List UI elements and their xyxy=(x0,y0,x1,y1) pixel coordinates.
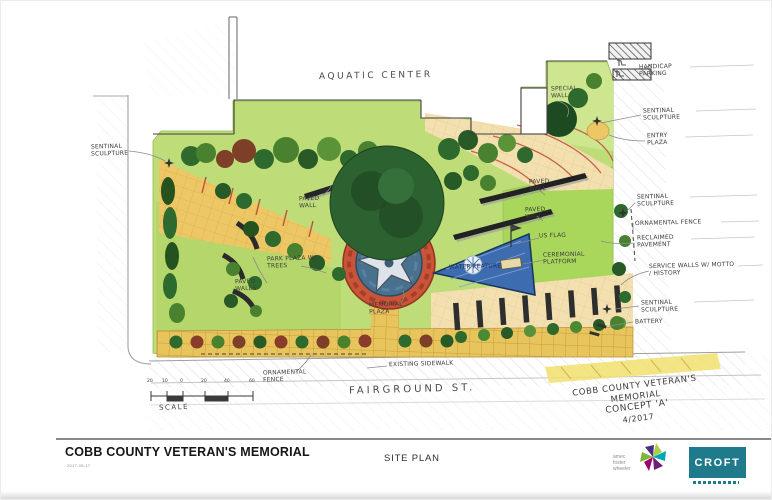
specimen-tree xyxy=(330,146,444,260)
amec-foster-wheeler-logo: amec foster wheeler xyxy=(611,439,673,483)
page-edge-shadow xyxy=(1,491,772,500)
project-title: COBB COUNTY VETERAN'S MEMORIAL xyxy=(65,445,310,459)
scale-tick: 0 xyxy=(180,379,183,384)
label-us-flag: US FLAG xyxy=(539,231,579,239)
label-ceremonial-platform: CEREMONIAL PLATFORM xyxy=(543,250,599,266)
sheet-name: SITE PLAN xyxy=(384,453,440,464)
scale-tick: 20 xyxy=(147,379,153,384)
scale-tick: 20 xyxy=(201,379,207,384)
label-sentinal-sculpture-w: SENTINAL SCULPTURE xyxy=(91,142,139,158)
label-paved-wall-nw: PAVED WALL xyxy=(299,195,333,210)
scale-tick: 40 xyxy=(224,379,230,384)
label-paved-wall-ne2: PAVED WALL xyxy=(525,206,559,221)
label-entry-plaza: ENTRY PLAZA xyxy=(647,132,683,147)
label-paved-walls-w: PAVED WALLS xyxy=(235,278,269,293)
croft-logo-text: CROFT xyxy=(695,457,741,469)
label-ornamental-fence-s: ORNAMENTAL FENCE xyxy=(263,368,309,384)
scale-tick: 10 xyxy=(162,379,168,384)
entry-plaza-paving xyxy=(587,122,609,140)
label-memorial-plaza: MEMORIAL PLAZA xyxy=(369,300,417,316)
label-paved-wall-ne1: PAVED WALL xyxy=(529,178,563,193)
croft-logo: CROFT xyxy=(689,447,746,478)
aquatic-center-label: AQUATIC CENTER xyxy=(319,70,433,82)
handicap-symbol-icon xyxy=(617,59,626,66)
graphic-scale: 20 10 0 20 40 60 SCALE xyxy=(147,379,267,410)
date-stamp: 2017-05-17 xyxy=(67,463,90,468)
label-sentinal-sculpture-se: SENTINAL SCULPTURE xyxy=(641,298,691,314)
label-reclaimed-pavement: RECLAIMED PAVEMENT xyxy=(637,233,689,249)
label-sentinal-sculpture-ne: SENTINAL SCULPTURE xyxy=(643,106,693,122)
label-handicap-parking: HANDICAP PARKING xyxy=(639,62,687,78)
label-park-plaza: PARK PLAZA W/ TREES xyxy=(267,254,319,270)
label-special-wall: SPECIAL WALL xyxy=(551,84,591,99)
amec-logo-text: amec foster wheeler xyxy=(613,455,631,472)
label-service-walls: SERVICE WALLS W/ MOTTO / HISTORY xyxy=(649,261,735,278)
label-sentinal-sculpture-e: SENTINAL SCULPTURE xyxy=(637,192,687,208)
label-battery: BATTERY xyxy=(635,317,675,325)
drawing-sheet: AQUATIC CENTER FAIRGROUND ST. SENTINAL S… xyxy=(0,0,772,500)
croft-tagline xyxy=(693,481,739,484)
scale-tick: 60 xyxy=(249,379,255,384)
